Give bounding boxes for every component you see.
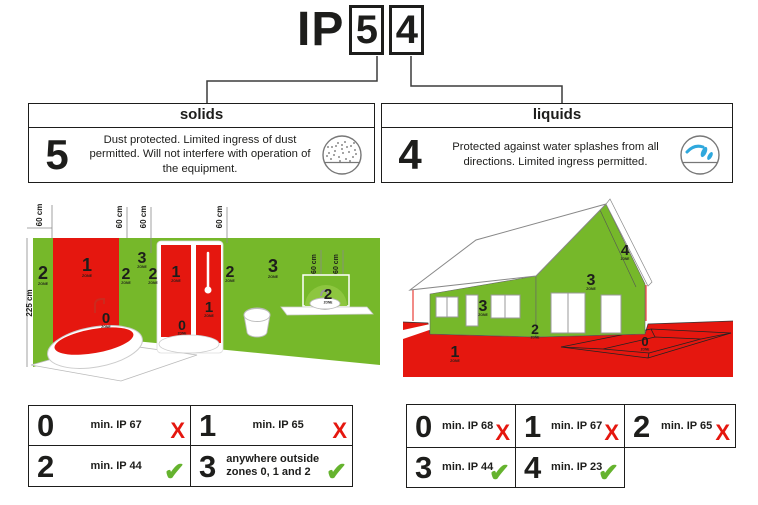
- dust-circle-icon: [319, 132, 365, 178]
- zone-label-tub-wall: 1: [82, 255, 92, 275]
- page-title: IP 5 4: [297, 5, 424, 55]
- zone-word: ZONE: [621, 257, 630, 261]
- pass-mark-icon: ✔: [489, 461, 510, 486]
- zone-number: 1: [191, 410, 216, 441]
- dim-60cm-mid3: 60 cm: [215, 206, 224, 229]
- zone-word: ZONE: [641, 348, 650, 352]
- zone-word: ZONE: [478, 313, 488, 317]
- solids-info-box: solids 5 Dust protected. Limited ingress…: [28, 103, 375, 183]
- table-row: 2 min. IP 65 X: [625, 405, 736, 448]
- door: [466, 295, 478, 326]
- bathroom-ip-table: 0 min. IP 67 X 1 min. IP 65 X 2 min. IP …: [28, 405, 353, 487]
- zone-label-left-strip: 2: [38, 263, 48, 283]
- zone-word: ZONE: [82, 274, 93, 278]
- dim-60cm-mid1: 60 cm: [115, 206, 124, 229]
- zone-word: ZONE: [171, 279, 181, 283]
- water-splash-icon: [677, 132, 723, 178]
- zone-number: 4: [516, 452, 541, 483]
- zone-number: 1: [516, 411, 541, 442]
- title-prefix: IP: [297, 6, 344, 54]
- zone-number: 3: [407, 452, 432, 483]
- solids-digit: 5: [29, 134, 85, 176]
- fail-mark-icon: X: [715, 422, 730, 444]
- pass-mark-icon: ✔: [164, 460, 185, 485]
- liquids-description: Protected against water splashes from al…: [438, 140, 673, 168]
- bathroom-zones-diagram: 60 cm 225 cm 60 cm 60 cm 60 cm 60 cm 60 …: [25, 195, 385, 395]
- zone-word: ZONE: [38, 282, 49, 286]
- liquids-info-box: liquids 4 Protected against water splash…: [381, 103, 733, 183]
- zone-number: 2: [29, 451, 54, 482]
- zone-word: ZONE: [586, 287, 596, 291]
- fail-mark-icon: X: [495, 422, 510, 444]
- zone-number: 3: [191, 451, 216, 482]
- shower-tray: [159, 335, 219, 353]
- zone-word: ZONE: [148, 281, 158, 285]
- solids-header: solids: [29, 104, 374, 128]
- zone-word: ZONE: [450, 359, 460, 363]
- shower-head-icon: [205, 287, 212, 294]
- empty-cell: [625, 448, 736, 488]
- table-row: 1 min. IP 67 X: [516, 405, 625, 448]
- zone-word: ZONE: [268, 275, 279, 279]
- liquids-header: liquids: [382, 104, 732, 128]
- table-row: 3 min. IP 44 ✔: [407, 448, 516, 488]
- table-row: 0 min. IP 67 X: [29, 406, 191, 446]
- shower-left-panel-zone1: [161, 245, 191, 337]
- pass-mark-icon: ✔: [326, 460, 347, 485]
- zone-word: ZONE: [137, 265, 147, 269]
- fail-mark-icon: X: [332, 420, 347, 442]
- zone-word: ZONE: [101, 325, 111, 329]
- table-row: 2 min. IP 44 ✔: [29, 446, 191, 486]
- solids-description: Dust protected. Limited ingress of dust …: [85, 133, 315, 175]
- zone-number: 0: [407, 411, 432, 442]
- zone-label-main-wall: 3: [268, 256, 278, 276]
- house-ip-table: 0 min. IP 68 X 1 min. IP 67 X 2 min. IP …: [406, 404, 736, 488]
- zone-word: ZONE: [324, 301, 333, 305]
- zone-number: 0: [29, 410, 54, 441]
- table-row: 0 min. IP 68 X: [407, 405, 516, 448]
- table-row: 1 min. IP 65 X: [191, 406, 352, 446]
- title-solids-digit: 5: [349, 5, 384, 55]
- zone-number: 2: [625, 411, 650, 442]
- fail-mark-icon: X: [604, 422, 619, 444]
- liquids-digit: 4: [382, 134, 438, 176]
- house-zones-diagram: 3 ZONE 2 ZONE 3 ZONE 4 ZONE 1 ZONE 0 ZON…: [398, 190, 738, 390]
- shower-enclosure: [157, 241, 223, 353]
- zone-word: ZONE: [225, 279, 235, 283]
- zone-word: ZONE: [178, 332, 187, 336]
- dim-60cm-basin1: 60 cm: [311, 254, 318, 274]
- ip54-infographic: IP 5 4 solids 5 Dust protected. Limited …: [0, 0, 758, 505]
- dim-225cm: 225 cm: [25, 289, 34, 316]
- dim-60cm-left: 60 cm: [35, 204, 44, 227]
- title-liquids-digit: 4: [389, 5, 424, 55]
- dim-60cm-basin2: 60 cm: [333, 254, 340, 274]
- toilet: [244, 308, 270, 337]
- zone-word: ZONE: [204, 314, 214, 318]
- zone-word: ZONE: [531, 336, 540, 340]
- fail-mark-icon: X: [170, 420, 185, 442]
- zone-word: ZONE: [121, 281, 131, 285]
- table-row: 3 anywhere outside zones 0, 1 and 2 ✔: [191, 446, 352, 486]
- dim-60cm-mid2: 60 cm: [139, 206, 148, 229]
- pass-mark-icon: ✔: [598, 461, 619, 486]
- table-row: 4 min. IP 23 ✔: [516, 448, 625, 488]
